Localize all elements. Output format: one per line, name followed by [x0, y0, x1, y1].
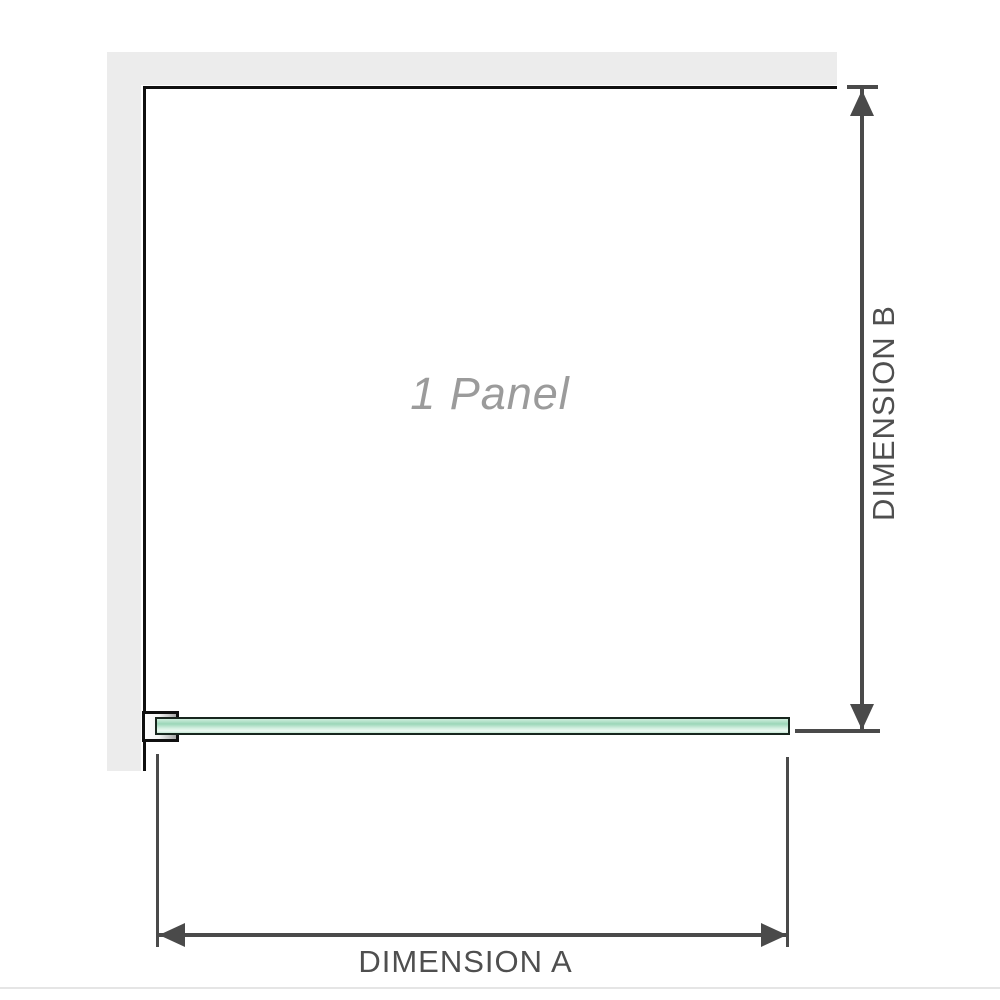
dimension-a-right-extension-line: [786, 757, 789, 947]
arrow-down-icon: [850, 704, 874, 730]
wall-left-bar: [107, 52, 141, 771]
wall-top-bar: [107, 52, 837, 85]
frame-left-line: [143, 86, 146, 771]
bottom-divider-line: [0, 987, 1000, 989]
frame-top-line: [143, 86, 837, 89]
panel-dimension-diagram: 1 Panel DIMENSION B DIMENSION A: [0, 0, 1000, 1000]
panel-count-watermark: 1 Panel: [143, 368, 837, 420]
dimension-b-bottom-cap: [795, 729, 880, 733]
dimension-a-left-extension-line: [156, 754, 159, 947]
dimension-b-label: DIMENSION B: [866, 305, 902, 521]
arrow-up-icon: [850, 90, 874, 116]
dimension-a-line: [159, 933, 787, 937]
glass-panel: [155, 717, 790, 735]
dimension-a-label: DIMENSION A: [143, 944, 788, 980]
dimension-b-line: [860, 88, 864, 730]
